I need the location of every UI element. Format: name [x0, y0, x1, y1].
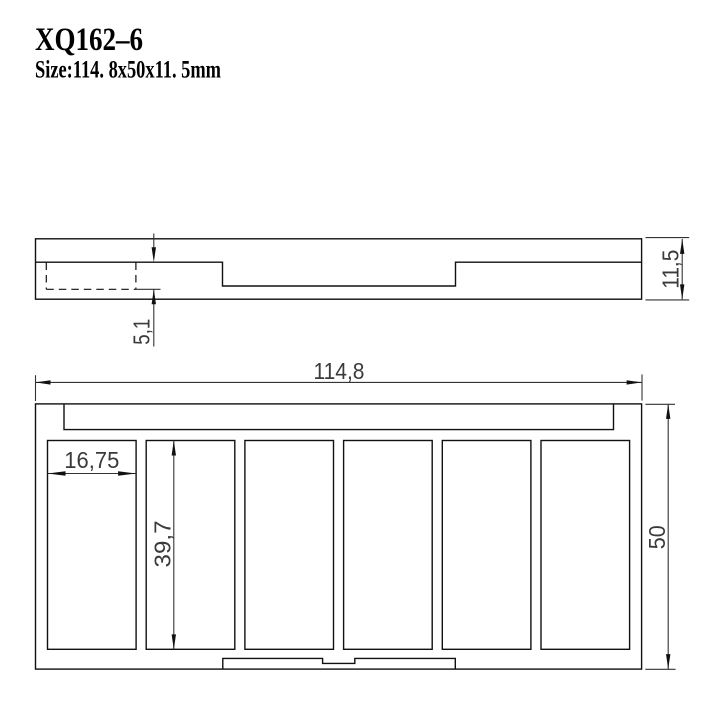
- svg-text:16,75: 16,75: [64, 447, 119, 473]
- svg-text:11,5: 11,5: [658, 250, 684, 289]
- svg-text:39,7: 39,7: [150, 521, 176, 568]
- svg-text:5,1: 5,1: [129, 319, 155, 345]
- svg-text:Size:114. 8x50x11. 5mm: Size:114. 8x50x11. 5mm: [35, 57, 221, 84]
- svg-text:114,8: 114,8: [314, 358, 365, 384]
- svg-text:XQ162–6: XQ162–6: [35, 22, 143, 58]
- svg-text:50: 50: [644, 525, 670, 549]
